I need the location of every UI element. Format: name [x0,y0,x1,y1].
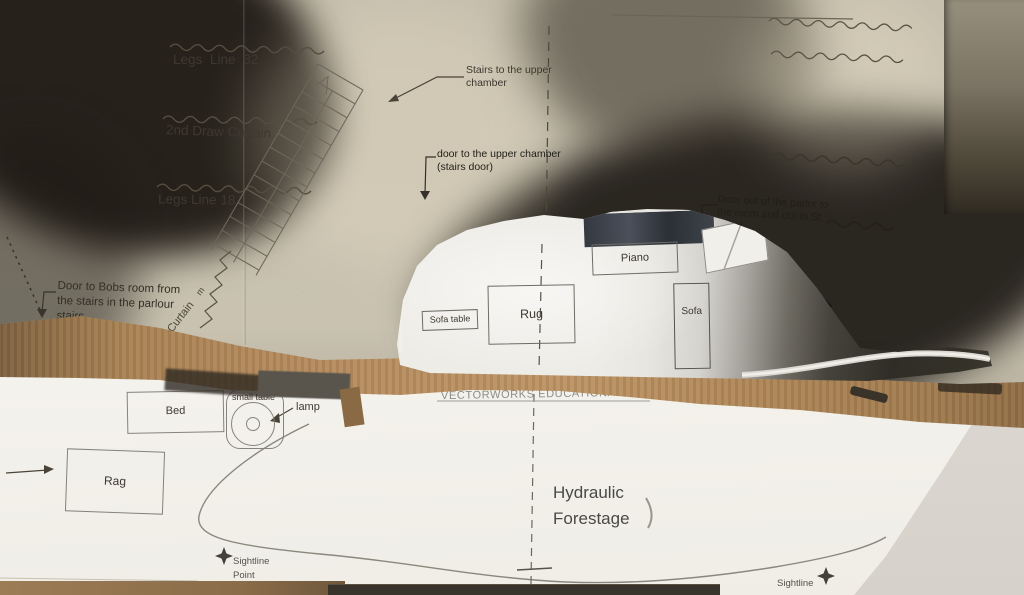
legs-line-18-label: Legs Line 18 [158,191,236,209]
sightline-marker [817,567,835,585]
door-upper-note: door to the upper chamber (stairs door) [437,148,561,174]
table-edge-dark [328,584,720,595]
forestage-label: Hydraulic Forestage [553,480,630,533]
lamp-dot [246,417,260,431]
sightline-point-label: Sightline Point [233,555,269,583]
rag-box: Rag [65,448,165,514]
sofa-table-label: Sofa table [430,314,471,327]
piano-box: Piano [591,242,678,276]
rag-leader [6,470,48,473]
cardboard-mark [849,386,888,404]
curtain-mark: m [194,285,207,298]
model-cut-edge-bottom [742,353,990,375]
centerline-lower [531,394,534,584]
sofa-table-box: Sofa table [422,309,479,331]
stage-plan-photo: Bed small table lamp Rag Hydraulic Fores… [0,0,1024,595]
bed-label: Bed [166,405,186,419]
rag-arrowhead [44,465,54,474]
background-strip [944,0,1024,214]
sofa-box: Sofa [673,283,710,370]
draw-curtain-label: 2nd Draw Curtain [166,122,272,143]
sightline-label: Sightline [777,578,813,590]
rug-label: Rug [520,306,543,322]
rug-box: Rug [487,284,575,345]
bed-box: Bed [127,390,225,434]
stairs-note: Stairs to the upper chamber [466,64,552,90]
centerline-tick [517,568,552,570]
pen-mark [646,498,652,528]
legs-line-32-label: Legs Line 32 [173,52,258,69]
rag-label: Rag [104,474,127,490]
cardboard-shadow [258,370,351,399]
lamp-label: lamp [296,401,320,415]
sofa-label: Sofa [681,306,702,319]
piano-label: Piano [621,251,650,266]
forestage-curve [199,424,886,583]
sightline-point-marker [215,547,233,565]
table-edge-brown [0,581,345,595]
